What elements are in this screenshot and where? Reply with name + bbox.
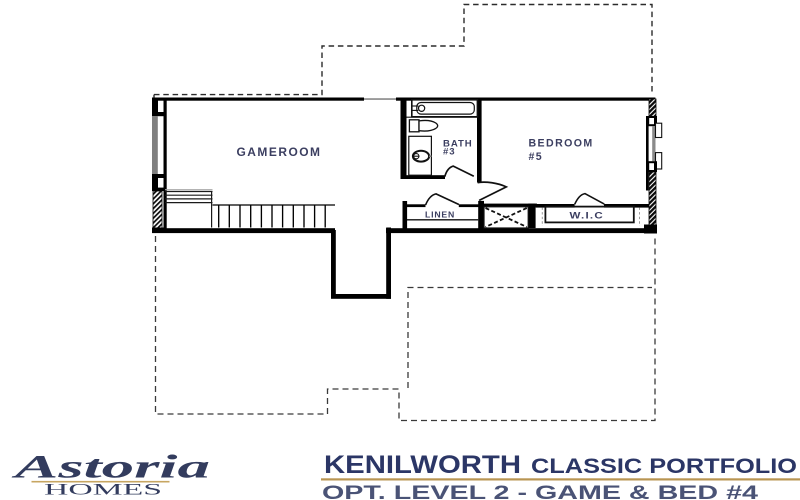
svg-text:LINEN: LINEN — [425, 209, 455, 219]
svg-text:CLASSIC PORTFOLIO: CLASSIC PORTFOLIO — [531, 455, 797, 478]
svg-text:GAMEROOM: GAMEROOM — [237, 145, 322, 159]
svg-text:Astoria: Astoria — [11, 450, 210, 486]
svg-text:KENILWORTH: KENILWORTH — [324, 451, 521, 479]
svg-text:HOMES: HOMES — [44, 482, 162, 499]
svg-text:#5: #5 — [529, 151, 544, 163]
svg-text:BEDROOM: BEDROOM — [529, 138, 594, 150]
svg-text:W.I.C: W.I.C — [570, 210, 605, 220]
svg-text:OPT. LEVEL 2 - GAME & BED #4: OPT. LEVEL 2 - GAME & BED #4 — [322, 483, 759, 500]
svg-text:#3: #3 — [443, 147, 455, 158]
